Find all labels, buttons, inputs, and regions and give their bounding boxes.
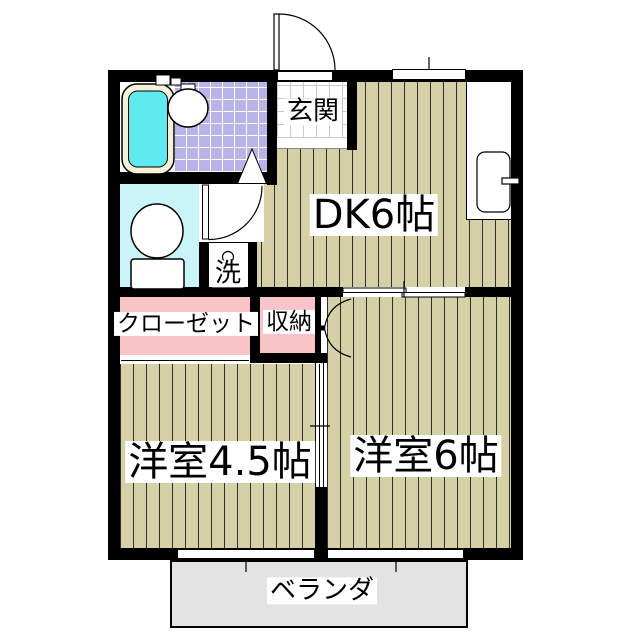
veranda-label: ベランダ: [267, 577, 377, 604]
storage-folding-door: [317, 299, 351, 357]
bathroom-door-marker: [238, 149, 267, 184]
toilet: [131, 204, 184, 289]
bathtub: [122, 75, 181, 174]
floor-plan: 玄関 DK6帖 クローゼット 収納 洗 洋室4.5帖 洋室6帖 ベランダ: [0, 0, 640, 640]
western45-label: 洋室4.5帖: [125, 441, 315, 483]
genkan-label: 玄関: [284, 98, 342, 125]
western6-label: 洋室6帖: [350, 435, 501, 477]
closet-label: クローゼット: [114, 312, 258, 336]
bathroom-sink: [168, 84, 208, 127]
dk-label: DK6帖: [310, 194, 438, 236]
kitchen-counter-sink: [477, 152, 519, 212]
storage-label: 収納: [263, 310, 315, 334]
laundry-label: 洗: [212, 260, 244, 287]
entrance-swing-door: [274, 14, 335, 70]
toilet-swing-door: [203, 185, 263, 240]
sliding-door-dk-western6-symbol: [343, 281, 465, 297]
